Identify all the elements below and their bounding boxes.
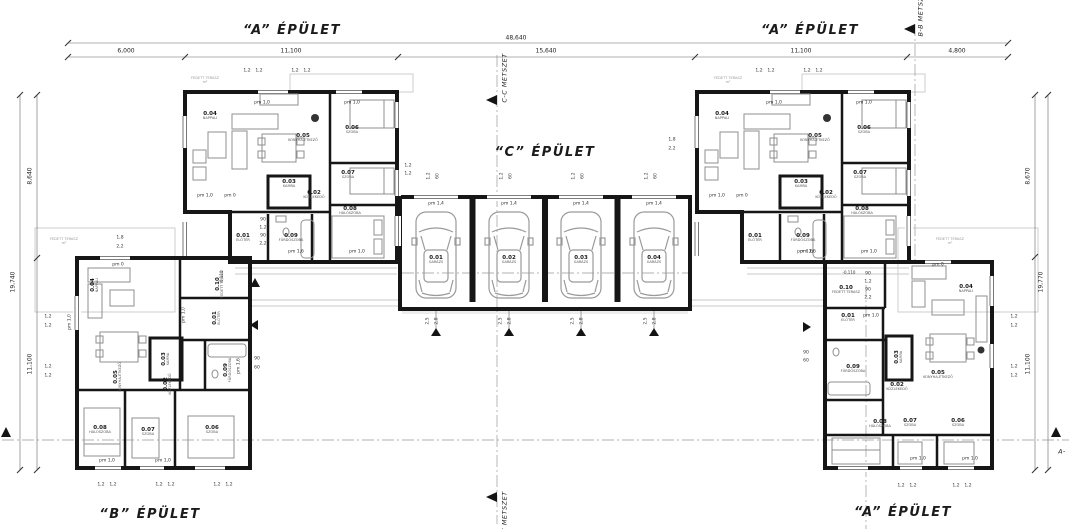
dim-label: 1,2 xyxy=(573,172,578,179)
room-label: 0.07SZOBA xyxy=(903,418,917,428)
dim-label: 1,2 xyxy=(909,485,916,490)
building-title-b: “B” ÉPÜLET xyxy=(99,508,200,522)
dim-label: 90 xyxy=(260,235,266,240)
dim-right-total: 19,770 xyxy=(1039,272,1046,293)
room-label: 0.01ELŐTÉR xyxy=(748,233,762,243)
door-sill-label: pm 1,6 xyxy=(797,251,813,256)
dim-top-segment-2: 11,100 xyxy=(281,49,302,56)
door-sill-label: pm 1,0 xyxy=(861,251,877,256)
garage-bay-label: 0.01GARÁZS xyxy=(428,255,444,265)
building-title-a-top-right: “A” ÉPÜLET xyxy=(761,24,859,38)
dim-label: 90 xyxy=(865,273,871,278)
section-label-aa-right: A- xyxy=(1058,448,1066,455)
dim-label: 60 xyxy=(803,360,809,365)
door-sill-label: pm 1,6 xyxy=(288,251,304,256)
garage-bay-label: 0.04GARÁZS xyxy=(646,255,662,265)
dim-label: 1,2 xyxy=(97,484,104,489)
room-label: 0.02KÖZLEKEDŐ xyxy=(886,382,907,392)
building-title-c: “C” ÉPÜLET xyxy=(495,146,596,160)
dim-label: 90 xyxy=(260,219,266,224)
dim-label: 1,2 xyxy=(1010,366,1017,371)
floor-plan: 0.04NAPPALI0.05KONYHA-ÉTKEZŐ0.06SZOBA0.0… xyxy=(0,0,1071,529)
dim-label: 1,2 xyxy=(255,70,262,75)
dim-label: 1,2 xyxy=(225,484,232,489)
dim-label: 1,2 xyxy=(501,172,506,179)
dim-label: 1,2 xyxy=(259,227,266,232)
room-label: 0.07SZOBA xyxy=(853,170,867,180)
dim-left-total: 19,740 xyxy=(11,272,18,293)
dim-label: 60 xyxy=(655,173,660,179)
dim-label: 2,2 xyxy=(116,246,123,251)
door-sill-label: pm 1,4 xyxy=(501,203,517,208)
dim-right-segment-1: 8,670 xyxy=(1026,167,1033,184)
room-label: 0.08HÁLÓSZOBA xyxy=(869,419,891,429)
dim-left-segment-1: 8,640 xyxy=(28,167,35,184)
dim-label: 1,2 xyxy=(243,70,250,75)
dim-label: 1,2 xyxy=(952,485,959,490)
section-label-cc-top: C-C METSZET xyxy=(501,53,508,102)
door-sill-label: pm 1,0 xyxy=(910,458,926,463)
terrace-note: FEDETT TERASZm² xyxy=(191,76,219,84)
dim-label: 1,2 xyxy=(428,172,433,179)
dim-top-segment-1: 6,000 xyxy=(117,49,134,56)
room-label: 0.03KAMRA xyxy=(894,350,904,364)
dim-label: 1,2 xyxy=(44,375,51,380)
door-sill-label: pm 1,0 xyxy=(254,102,270,107)
room-label: 0.05KONYHA-ÉTKEZŐ xyxy=(800,133,830,143)
room-label: 0.09FÜRDŐSZOBA xyxy=(279,233,304,243)
plan-drawing xyxy=(0,0,1071,529)
level-mark: -0,110 xyxy=(843,271,856,275)
dim-label: 1,2 xyxy=(864,281,871,286)
garage-bay-label: 0.03GARÁZS xyxy=(573,255,589,265)
dim-label: 1,2 xyxy=(155,484,162,489)
room-label: 0.06SZOBA xyxy=(205,425,219,435)
door-sill-label: pm 1,0 xyxy=(856,102,872,107)
dim-label: 1,8 xyxy=(116,237,123,242)
room-label: 0.08HÁLÓSZOBA xyxy=(851,206,873,216)
dim-label: 1,2 xyxy=(755,70,762,75)
room-label: 0.04NAPPALI xyxy=(959,284,973,294)
room-label: 0.01ELŐTÉR xyxy=(212,311,222,325)
building-title-a-top-left: “A” ÉPÜLET xyxy=(243,24,341,38)
dim-label: 60 xyxy=(254,367,260,372)
dim-label: 1,8 xyxy=(668,139,675,144)
room-label: 0.04NAPPALI xyxy=(715,111,729,121)
dim-label: 2,5 xyxy=(572,317,577,324)
door-sill-label: pm 1,0 xyxy=(962,458,978,463)
section-label-bb: B-B METSZET xyxy=(917,0,924,37)
dim-label: 60 xyxy=(437,173,442,179)
door-sill-label: pm 0 xyxy=(736,195,748,200)
dim-label: 2,2 xyxy=(668,148,675,153)
room-label: 0.01ELŐTÉR xyxy=(841,313,855,323)
dim-label: 1,2 xyxy=(646,172,651,179)
dim-label: 1,2 xyxy=(167,484,174,489)
door-sill-label: pm 1,0 xyxy=(766,102,782,107)
dim-label: 1,2 xyxy=(803,70,810,75)
door-sill-label: pm 1,0 xyxy=(344,102,360,107)
room-label: 0.09FÜRDŐSZOBA xyxy=(791,233,816,243)
room-label: 0.03KAMRA xyxy=(794,179,808,189)
room-label: 0.03KAMRA xyxy=(161,352,171,366)
dim-label: 90 xyxy=(254,358,260,363)
room-label: 0.08HÁLÓSZOBA xyxy=(339,206,361,216)
dim-label: 1,2 xyxy=(109,484,116,489)
terrace-note: FEDETT TERASZm² xyxy=(714,76,742,84)
dim-label: 1,2 xyxy=(44,316,51,321)
room-label: 0.05KONYHA-ÉTKEZŐ xyxy=(113,362,123,392)
dim-top-segment-4: 11,100 xyxy=(791,49,812,56)
door-sill-label: pm 1,6 xyxy=(238,358,243,374)
door-sill-label: pm 1,0 xyxy=(183,307,188,323)
room-label: 0.06SZOBA xyxy=(857,125,871,135)
dim-label: 1,2 xyxy=(815,70,822,75)
dim-label: 1,2 xyxy=(303,70,310,75)
dim-label: 1,2 xyxy=(44,325,51,330)
dim-label: 1,2 xyxy=(767,70,774,75)
dim-label: 1,2 xyxy=(964,485,971,490)
room-label: 0.09FÜRDŐSZOBA xyxy=(223,358,233,383)
dim-label: 90 xyxy=(803,352,809,357)
door-sill-label: pm 0 xyxy=(932,264,944,269)
section-label-cc-bottom: C-C METSZET xyxy=(501,491,508,529)
dim-top-total: 48,640 xyxy=(506,36,527,43)
dim-label: 2,5 xyxy=(645,317,650,324)
dim-label: 1,2 xyxy=(44,366,51,371)
door-sill-label: pm 1,4 xyxy=(428,203,444,208)
dim-label: 2,5 xyxy=(500,317,505,324)
dim-label: 1,2 xyxy=(404,165,411,170)
dim-label: 60 xyxy=(510,173,515,179)
room-label: 0.07SZOBA xyxy=(141,427,155,437)
terrace-note: FEDETT TERASZm² xyxy=(936,237,964,245)
dim-left-segment-2: 11,100 xyxy=(28,354,35,375)
room-label: 0.03KAMRA xyxy=(282,179,296,189)
dim-label: 2,8 xyxy=(654,317,659,324)
room-label: 0.05KONYHA-ÉTKEZŐ xyxy=(288,133,318,143)
dim-label: 2,8 xyxy=(581,317,586,324)
room-label: 0.06SZOBA xyxy=(951,418,965,428)
door-sill-label: pm 0 xyxy=(112,264,124,269)
terrace-note: FEDETT TERASZm² xyxy=(50,237,78,245)
dim-label: 2,8 xyxy=(509,317,514,324)
dim-top-segment-5: 4,800 xyxy=(948,49,965,56)
door-sill-label: pm 0 xyxy=(224,195,236,200)
dim-label: 2,8 xyxy=(436,317,441,324)
dim-label: 1,2 xyxy=(897,485,904,490)
door-sill-label: pm 1,0 xyxy=(155,460,171,465)
dim-label: 60 xyxy=(582,173,587,179)
room-label: 0.04NAPPALI xyxy=(90,278,100,292)
door-sill-label: pm 1,4 xyxy=(573,203,589,208)
door-sill-label: pm 1,0 xyxy=(349,251,365,256)
dim-label: 1,2 xyxy=(1010,316,1017,321)
dim-label: 1,2 xyxy=(404,173,411,178)
dim-label: 1,2 xyxy=(213,484,220,489)
dim-right-segment-2: 11,100 xyxy=(1026,354,1033,375)
room-label: 0.02KÖZLEKEDŐ xyxy=(303,190,324,200)
dim-label: 2,2 xyxy=(864,297,871,302)
door-sill-label: pm 1,0 xyxy=(709,195,725,200)
door-sill-label: pm 1,0 xyxy=(69,314,74,330)
dim-label: 2,5 xyxy=(427,317,432,324)
room-label: 0.02KÖZLEKEDŐ xyxy=(163,373,173,394)
room-label: 0.05KONYHA-ÉTKEZŐ xyxy=(923,370,953,380)
door-sill-label: pm 1,4 xyxy=(646,203,662,208)
dim-label: 1,2 xyxy=(1010,325,1017,330)
room-label: 0.06SZOBA xyxy=(345,125,359,135)
room-label: 0.02KÖZLEKEDŐ xyxy=(815,190,836,200)
building-title-a-bottom-right: “A” ÉPÜLET xyxy=(854,506,952,520)
door-sill-label: pm 1,0 xyxy=(197,195,213,200)
garage-bay-label: 0.02GARÁZS xyxy=(501,255,517,265)
dim-label: 1,2 xyxy=(1010,375,1017,380)
room-label: 0.01ELŐTÉR xyxy=(236,233,250,243)
door-sill-label: pm 1,0 xyxy=(99,460,115,465)
room-label: 0.04NAPPALI xyxy=(203,111,217,121)
dim-label: 2,2 xyxy=(259,243,266,248)
dim-label: 1,2 xyxy=(291,70,298,75)
door-sill-label: pm 1,0 xyxy=(863,315,879,320)
dim-label: 90 xyxy=(865,289,871,294)
room-label: 0.08HÁLÓSZOBA xyxy=(89,425,111,435)
dim-top-segment-3: 15,640 xyxy=(536,49,557,56)
room-label: 0.07SZOBA xyxy=(341,170,355,180)
room-label: 0.10FEDETT TERASZ xyxy=(832,285,860,295)
level-mark: -0,110 xyxy=(220,271,224,284)
room-label: 0.09FÜRDŐSZOBA xyxy=(841,364,866,374)
